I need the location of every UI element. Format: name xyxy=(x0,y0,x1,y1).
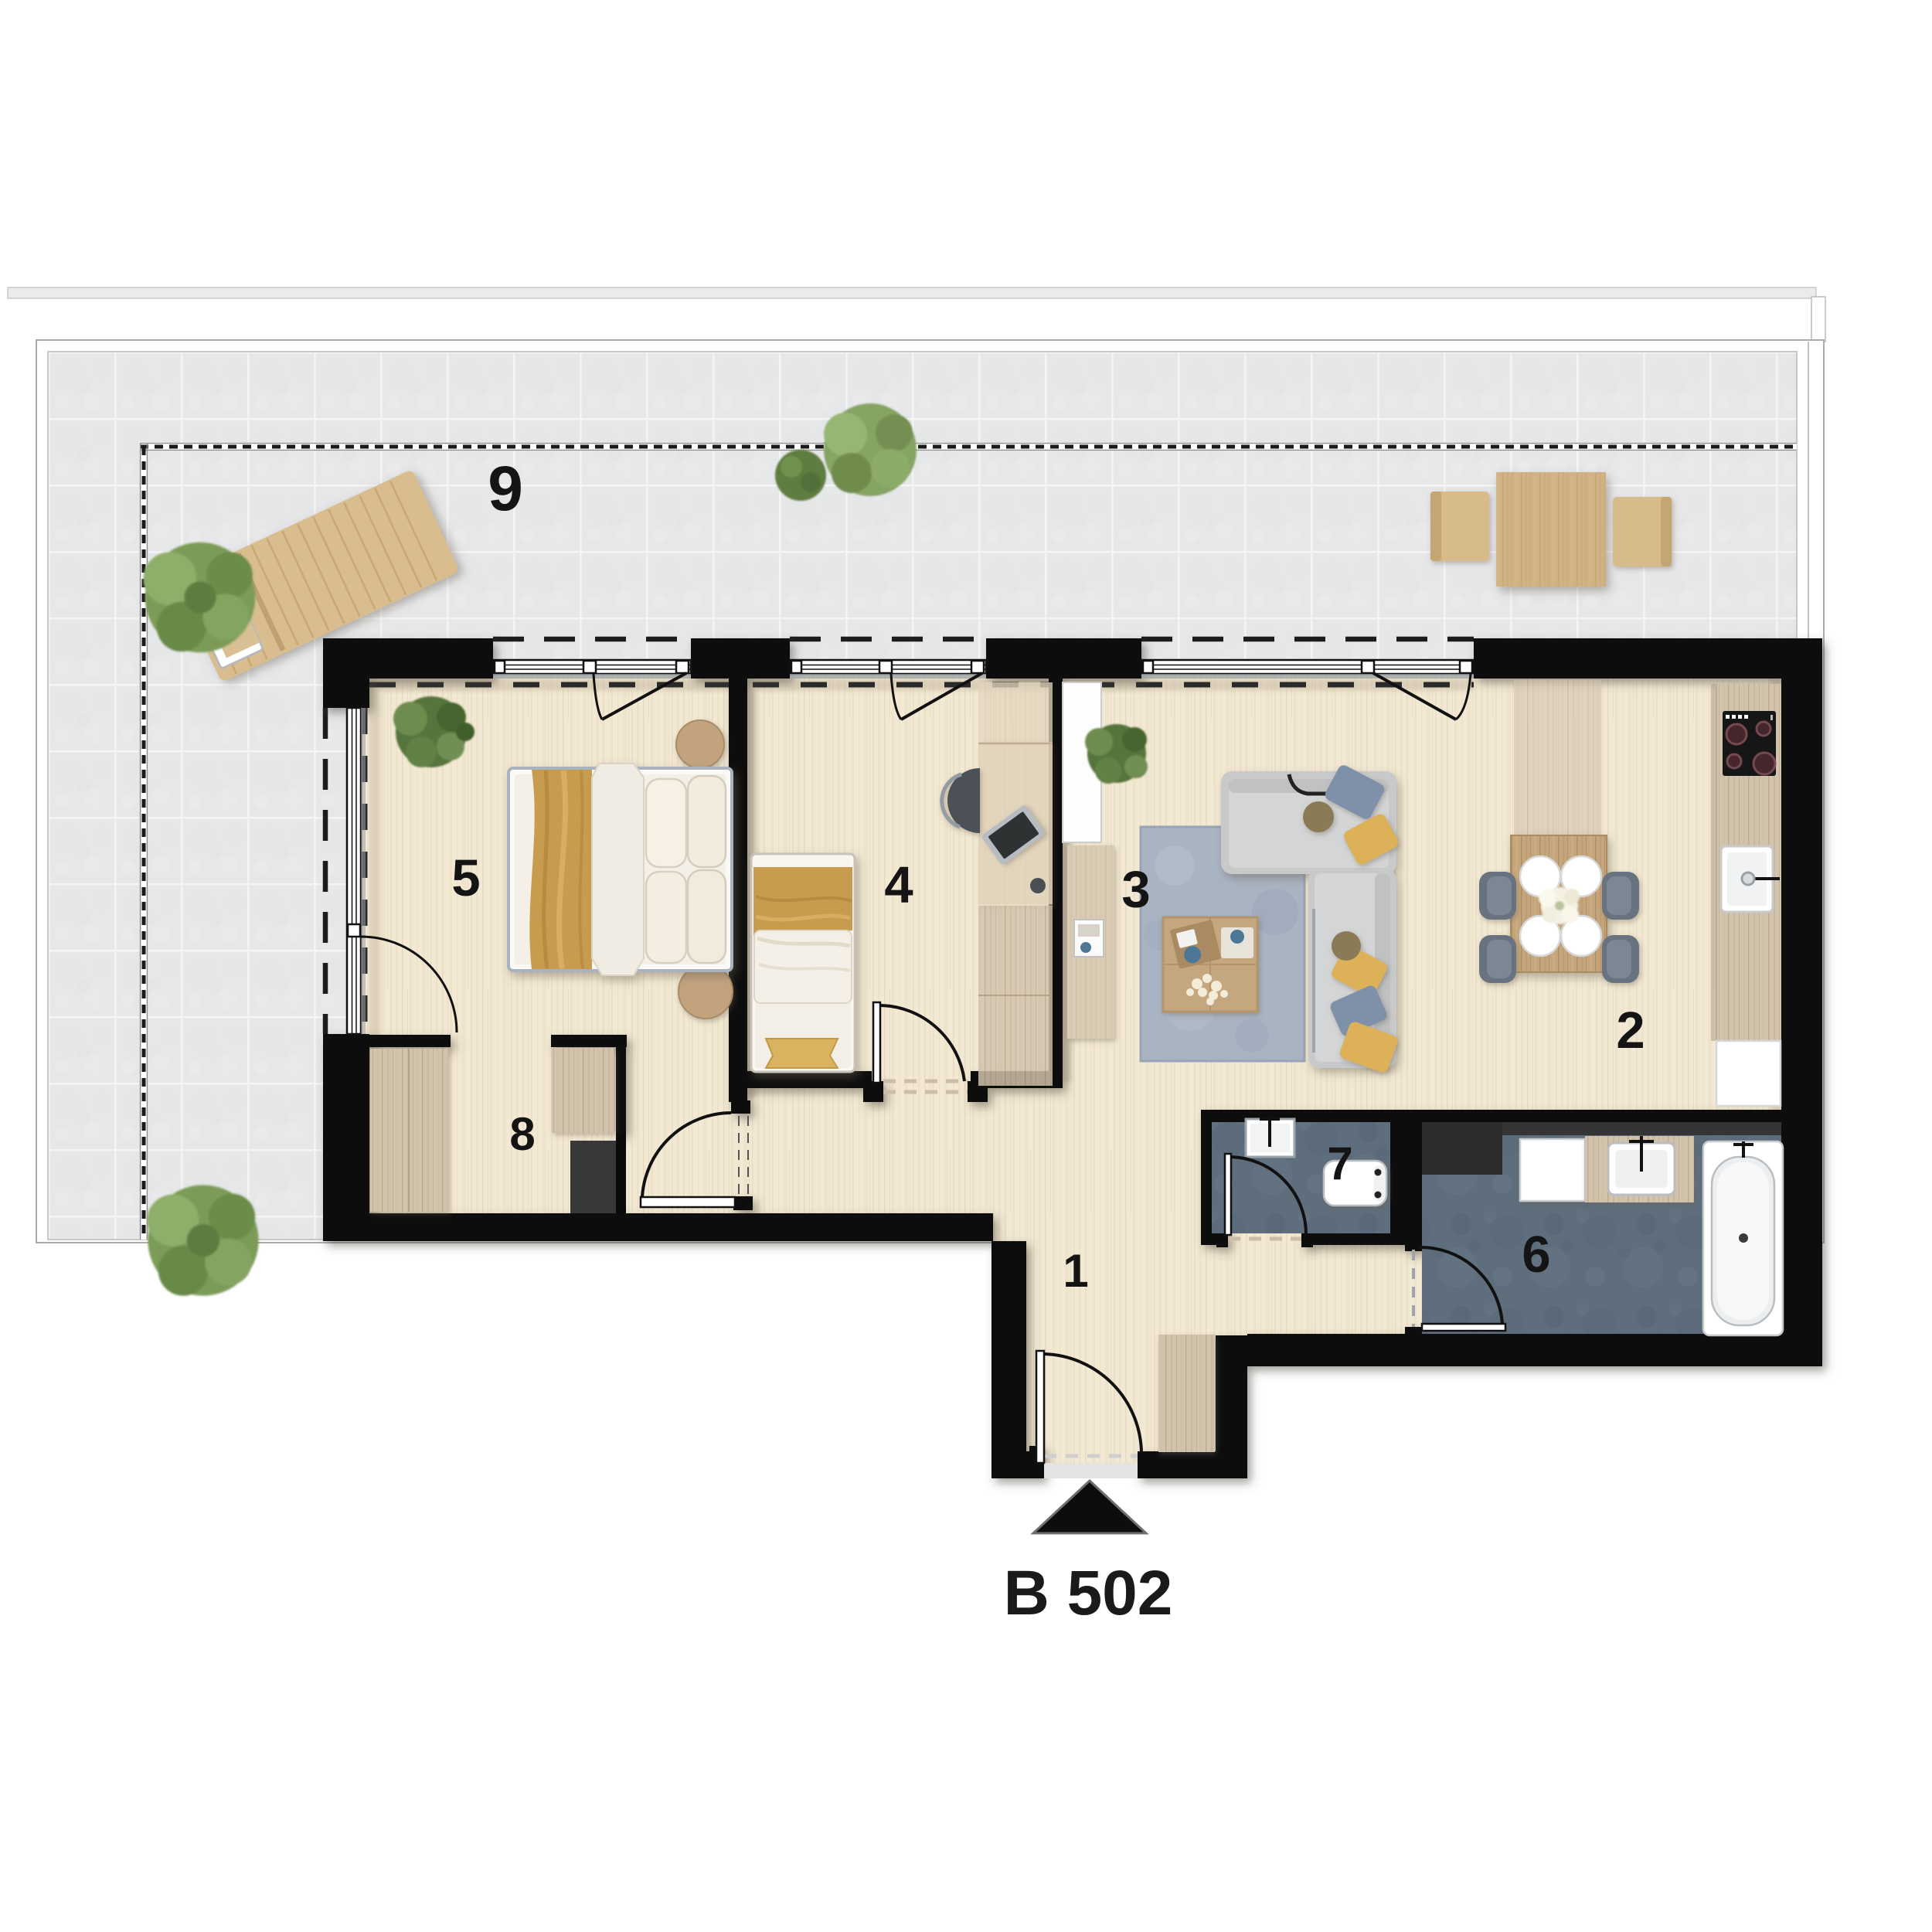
svg-text:3: 3 xyxy=(1121,861,1150,919)
svg-text:4: 4 xyxy=(884,856,913,914)
svg-text:5: 5 xyxy=(451,849,480,907)
svg-text:1: 1 xyxy=(1063,1245,1088,1297)
svg-text:B 502: B 502 xyxy=(1004,1558,1173,1628)
svg-text:6: 6 xyxy=(1522,1226,1550,1284)
svg-text:9: 9 xyxy=(488,454,523,524)
svg-text:8: 8 xyxy=(509,1108,535,1160)
svg-text:7: 7 xyxy=(1327,1138,1352,1189)
svg-text:2: 2 xyxy=(1616,1002,1645,1060)
